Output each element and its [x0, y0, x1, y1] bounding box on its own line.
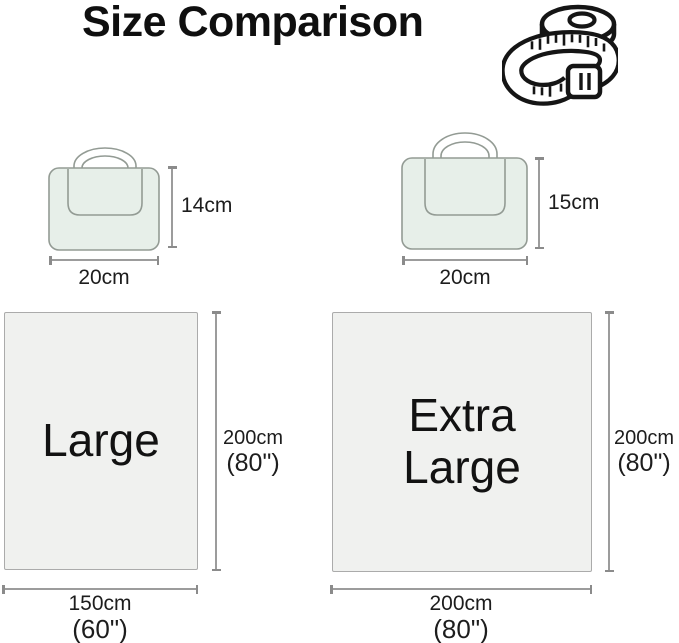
large-blanket-width-in: (60")	[3, 616, 197, 643]
large-blanket-width-dimension-line	[3, 588, 197, 590]
large-bag-height-label: 15cm	[548, 192, 599, 214]
large-blanket-width-labels: 150cm (60")	[3, 593, 197, 643]
tape-end-tab	[568, 66, 600, 97]
extra-large-blanket-height-cm: 200cm	[608, 428, 679, 449]
page-title: Size Comparison	[82, 1, 423, 44]
large-bag-illustration	[399, 128, 543, 252]
extra-large-blanket-height-labels: 200cm (80")	[608, 428, 679, 476]
extra-large-label-line1: Extra	[403, 390, 521, 442]
size-comparison-diagram: Size Comparison	[0, 0, 679, 643]
measuring-tape-icon	[502, 0, 618, 106]
tape-roll-hole	[570, 14, 595, 27]
small-bag-illustration	[47, 144, 161, 252]
extra-large-blanket-rect: Extra Large	[332, 312, 592, 572]
large-bag-width-label: 20cm	[403, 267, 527, 289]
small-bag-height-dimension-line	[171, 167, 173, 247]
extra-large-blanket-width-labels: 200cm (80")	[331, 593, 591, 643]
extra-large-blanket-label: Extra Large	[403, 390, 521, 493]
bag-body	[402, 158, 527, 249]
small-bag-height-label: 14cm	[181, 195, 232, 217]
extra-large-blanket-width-cm: 200cm	[331, 593, 591, 615]
large-blanket-height-labels: 200cm (80")	[217, 428, 289, 476]
large-blanket-width-cm: 150cm	[3, 593, 197, 615]
extra-large-blanket-width-dimension-line	[331, 588, 591, 590]
large-blanket-label: Large	[42, 415, 160, 467]
large-bag-width-dimension-line	[403, 259, 527, 261]
large-blanket-height-cm: 200cm	[217, 428, 289, 449]
large-blanket-rect: Large	[4, 312, 198, 570]
extra-large-label-line2: Large	[403, 442, 521, 494]
large-bag-height-dimension-line	[538, 158, 540, 248]
extra-large-blanket-height-in: (80")	[608, 450, 679, 476]
large-blanket-height-in: (80")	[217, 450, 289, 476]
extra-large-blanket-width-in: (80")	[331, 616, 591, 643]
small-bag-width-label: 20cm	[50, 267, 158, 289]
small-bag-width-dimension-line	[50, 259, 158, 261]
